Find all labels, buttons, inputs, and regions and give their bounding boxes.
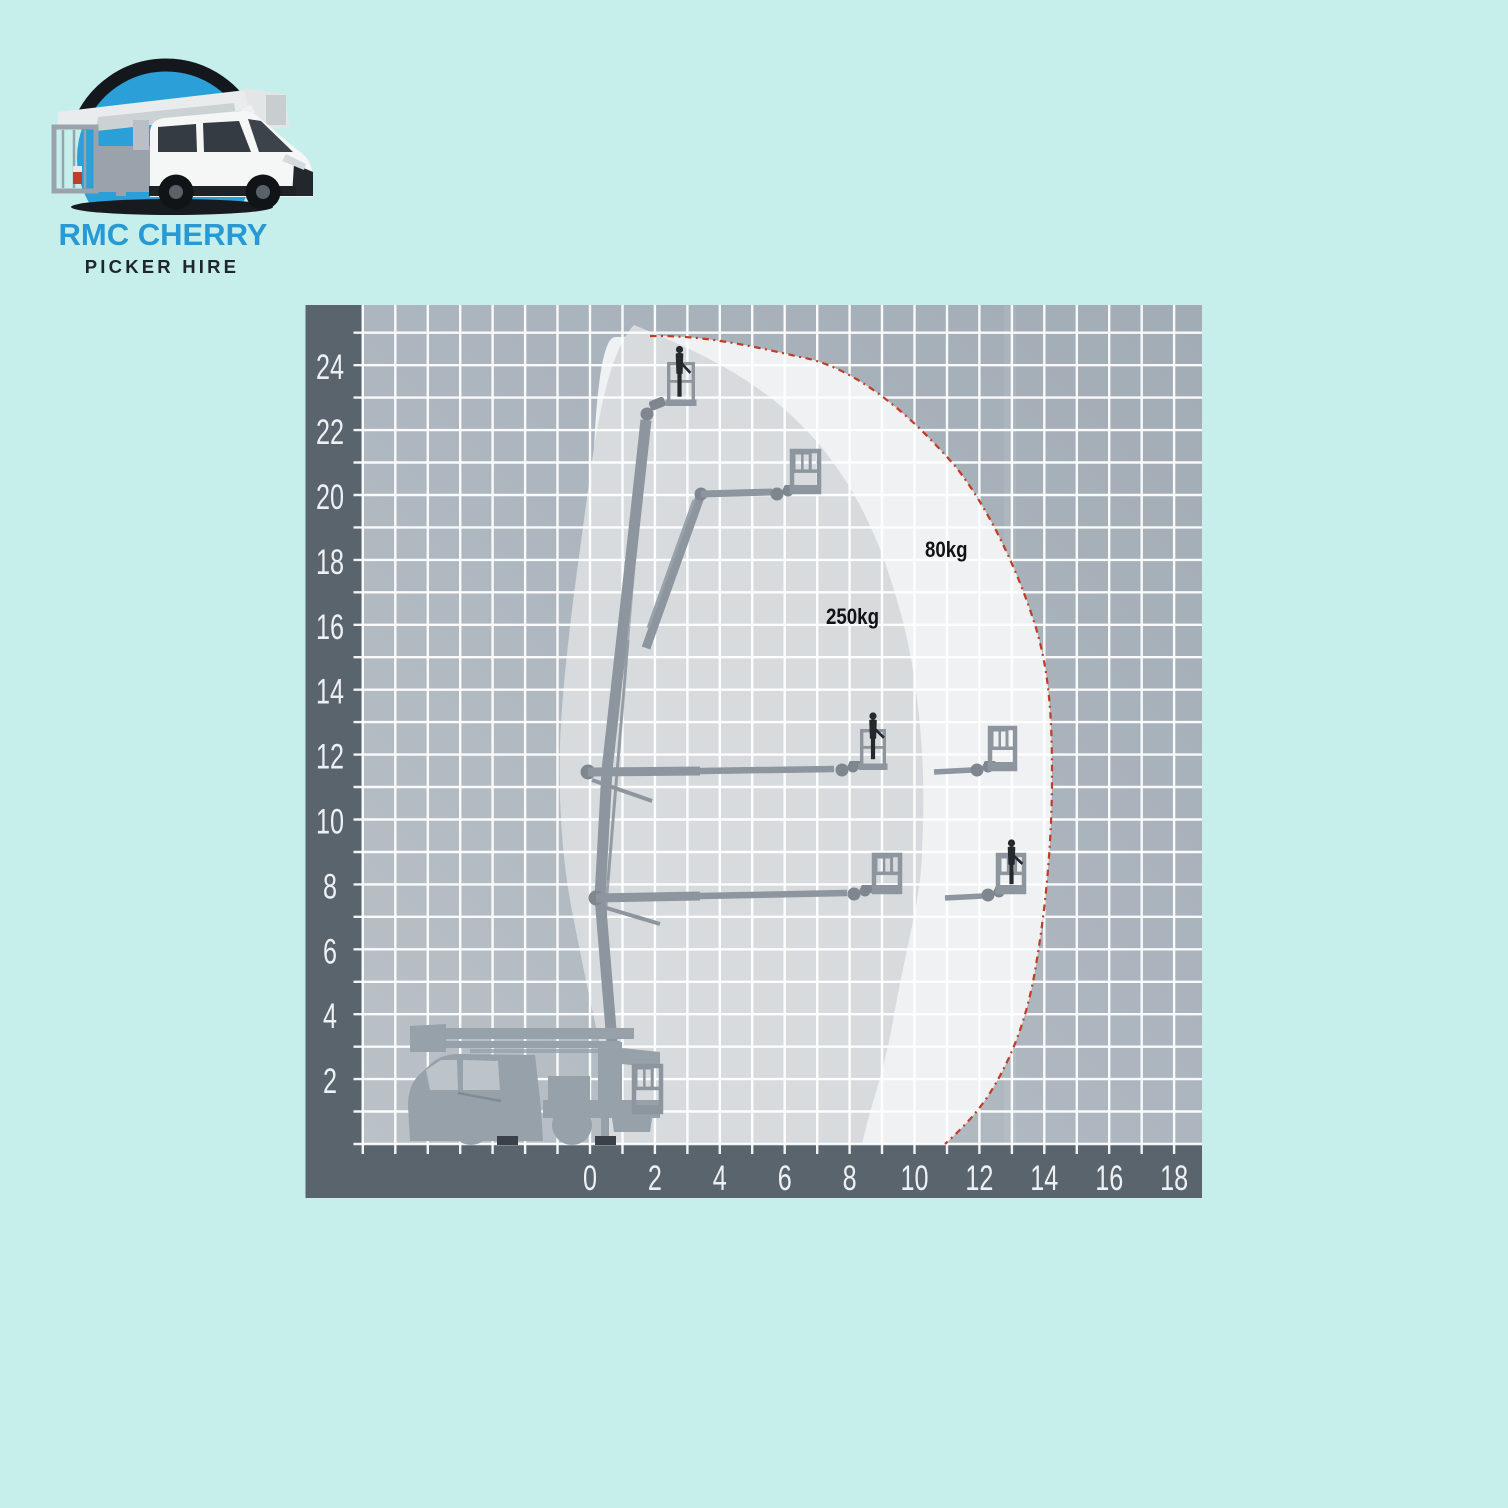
svg-text:4: 4	[713, 1159, 727, 1198]
svg-text:10: 10	[316, 803, 344, 842]
svg-text:0: 0	[583, 1159, 597, 1198]
svg-text:16: 16	[1095, 1159, 1123, 1198]
svg-text:14: 14	[1030, 1159, 1058, 1198]
svg-text:22: 22	[316, 413, 344, 452]
svg-text:10: 10	[900, 1159, 928, 1198]
svg-text:14: 14	[316, 673, 344, 712]
svg-text:18: 18	[316, 543, 344, 582]
svg-text:12: 12	[316, 738, 344, 777]
svg-text:8: 8	[323, 867, 337, 906]
svg-text:RMC CHERRY: RMC CHERRY	[59, 217, 268, 252]
svg-text:6: 6	[323, 932, 337, 971]
svg-text:8: 8	[843, 1159, 857, 1198]
svg-text:16: 16	[316, 608, 344, 647]
svg-text:6: 6	[778, 1159, 792, 1198]
svg-text:2: 2	[648, 1159, 662, 1198]
svg-text:24: 24	[316, 348, 344, 387]
svg-text:2: 2	[323, 1062, 337, 1101]
svg-text:18: 18	[1160, 1159, 1188, 1198]
svg-text:80kg: 80kg	[925, 539, 968, 563]
svg-text:20: 20	[316, 478, 344, 517]
svg-text:12: 12	[965, 1159, 993, 1198]
svg-text:250kg: 250kg	[826, 606, 879, 630]
svg-text:PICKER HIRE: PICKER HIRE	[85, 256, 239, 277]
svg-text:4: 4	[323, 997, 337, 1036]
